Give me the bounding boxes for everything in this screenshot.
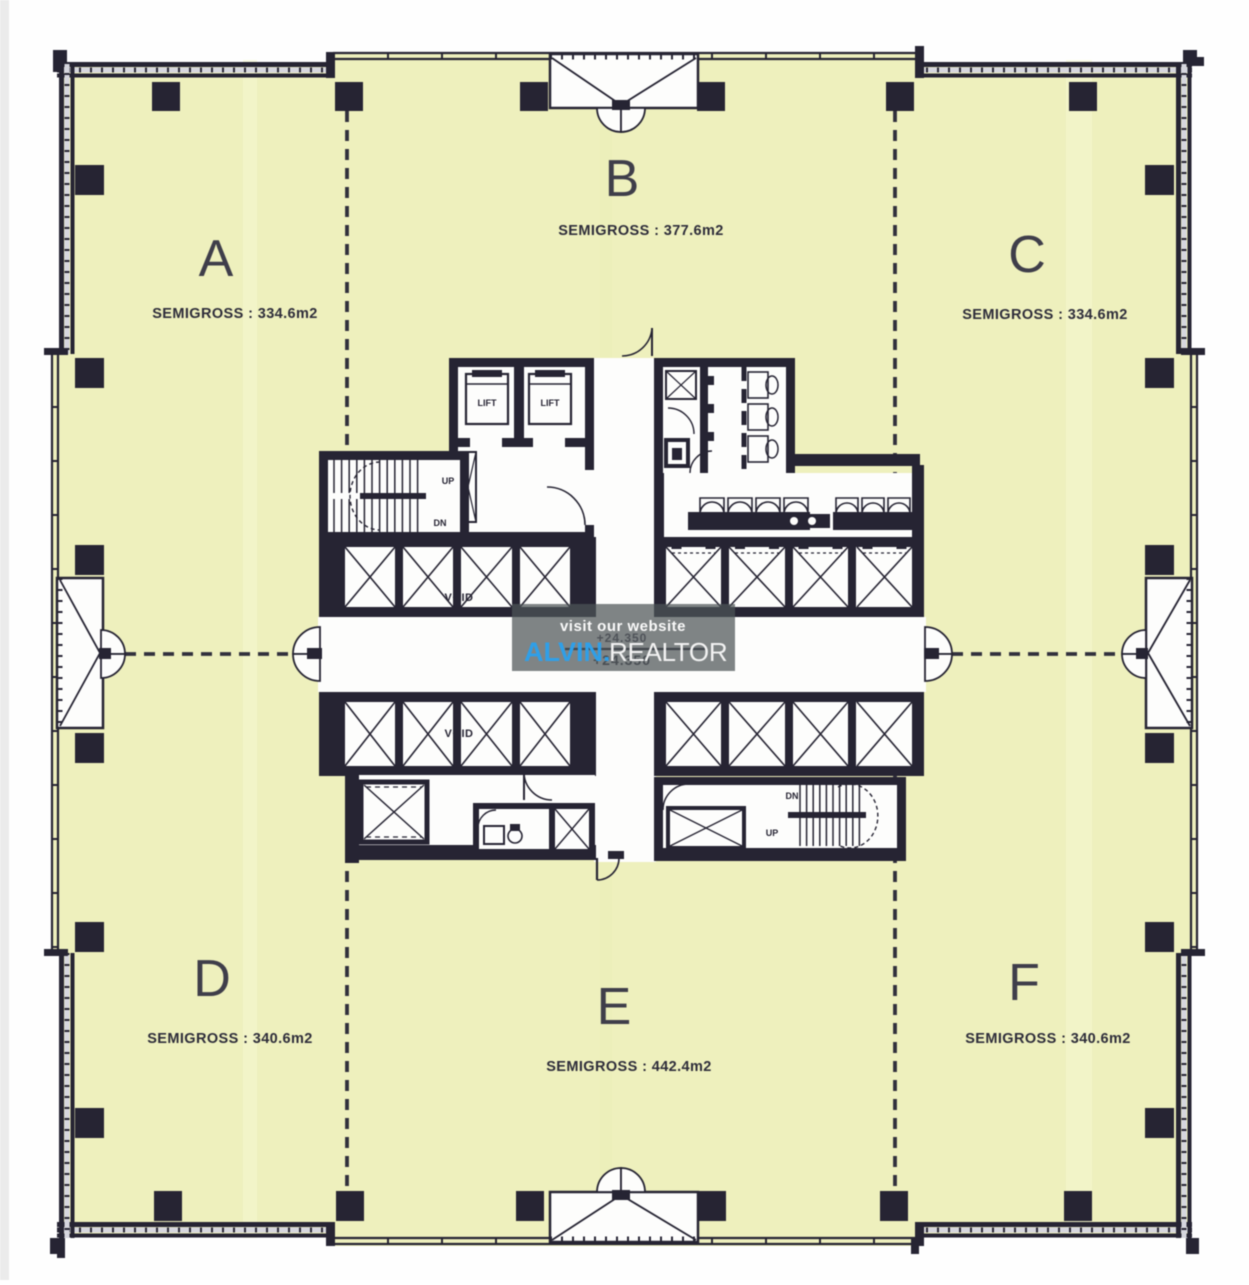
svg-text:ALVIN.: ALVIN. [524,637,611,667]
svg-text:SEMIGROSS : 334.6m2: SEMIGROSS : 334.6m2 [962,307,1128,323]
svg-text:LIFT: LIFT [541,398,560,408]
svg-text:A: A [199,230,234,288]
svg-text:VOID: VOID [445,592,474,604]
svg-text:SEMIGROSS : 334.6m2: SEMIGROSS : 334.6m2 [152,306,318,322]
svg-text:REALTOR: REALTOR [609,637,727,667]
svg-text:C: C [1008,226,1046,284]
svg-text:SEMIGROSS : 442.4m2: SEMIGROSS : 442.4m2 [546,1059,712,1075]
svg-text:DN: DN [786,791,799,801]
svg-text:UP: UP [766,828,779,838]
svg-text:VOID: VOID [445,728,474,740]
svg-text:SEMIGROSS : 340.6m2: SEMIGROSS : 340.6m2 [147,1031,313,1047]
svg-text:B: B [605,150,640,208]
svg-text:SEMIGROSS : 340.6m2: SEMIGROSS : 340.6m2 [965,1031,1131,1047]
svg-text:DN: DN [434,518,447,528]
svg-text:LIFT: LIFT [478,398,497,408]
svg-text:D: D [193,950,231,1008]
svg-text:SEMIGROSS : 377.6m2: SEMIGROSS : 377.6m2 [558,223,724,239]
svg-text:F: F [1008,954,1040,1012]
svg-text:visit our website: visit our website [560,618,686,635]
svg-text:E: E [597,978,632,1036]
svg-text:UP: UP [442,476,455,486]
